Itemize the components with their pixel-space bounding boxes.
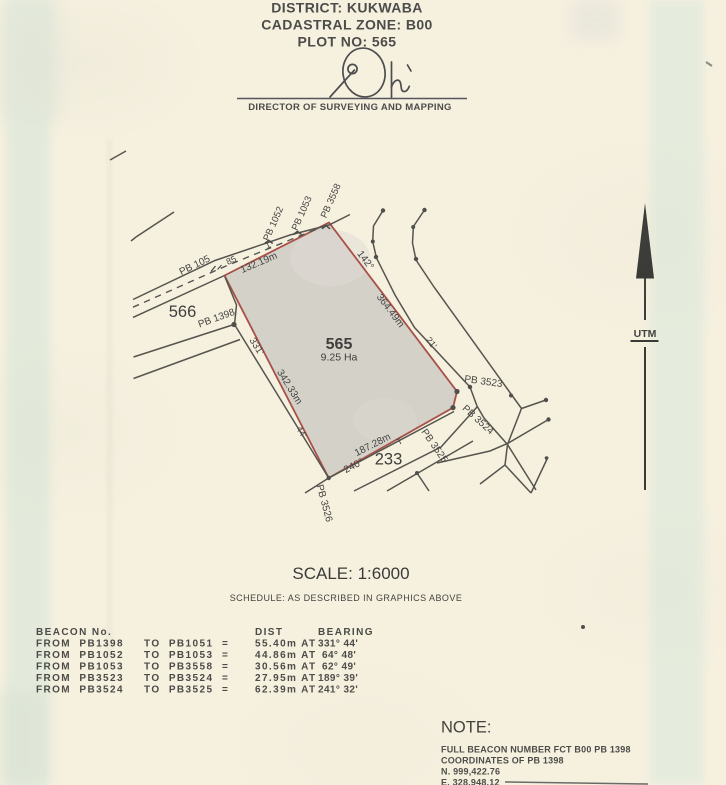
svg-text:TO PB3525: TO PB3525 xyxy=(144,685,213,696)
svg-text:E. 328,948.12: E. 328,948.12 xyxy=(441,777,500,785)
svg-text:SCHEDULE: AS DESCRIBED IN GRAP: SCHEDULE: AS DESCRIBED IN GRAPHICS ABOVE xyxy=(230,593,463,603)
svg-text:CADASTRAL ZONE: B00: CADASTRAL ZONE: B00 xyxy=(261,17,432,33)
svg-text:44.86m AT: 44.86m AT xyxy=(255,650,317,661)
svg-text:DIST: DIST xyxy=(255,627,283,638)
svg-text:=: = xyxy=(222,639,229,650)
svg-text:SCALE: 1:6000: SCALE: 1:6000 xyxy=(292,564,409,583)
svg-text:PB 3526: PB 3526 xyxy=(314,483,335,523)
svg-text:62.39m AT: 62.39m AT xyxy=(255,685,317,696)
svg-text:PB 3558: PB 3558 xyxy=(319,182,344,220)
svg-text:233: 233 xyxy=(375,451,403,469)
svg-text:9.25 Ha: 9.25 Ha xyxy=(321,352,358,364)
svg-text:331° 44': 331° 44' xyxy=(318,639,358,650)
svg-text:TO PB3524: TO PB3524 xyxy=(144,673,213,684)
svg-text:566: 566 xyxy=(169,303,197,321)
svg-text:PB 3525: PB 3525 xyxy=(419,427,450,465)
svg-text:DISTRICT: KUKWABA: DISTRICT: KUKWABA xyxy=(271,0,422,16)
svg-text:55.40m AT: 55.40m AT xyxy=(255,639,317,650)
svg-text:UTM: UTM xyxy=(634,328,657,340)
svg-text:27.95m AT: 27.95m AT xyxy=(255,673,317,684)
svg-text:PB 1053: PB 1053 xyxy=(290,195,315,233)
svg-text:TO PB1051: TO PB1051 xyxy=(144,639,213,650)
svg-text:64° 48': 64° 48' xyxy=(322,650,356,661)
svg-text:FULL BEACON NUMBER FCT B00 PB: FULL BEACON NUMBER FCT B00 PB 1398 xyxy=(441,745,631,755)
svg-text:21': 21' xyxy=(424,335,439,351)
svg-text:PB 1398: PB 1398 xyxy=(197,307,237,331)
svg-text:FROM PB1398: FROM PB1398 xyxy=(36,639,124,650)
svg-text:62° 49': 62° 49' xyxy=(322,662,356,673)
svg-text:PLOT NO: 565: PLOT NO: 565 xyxy=(298,34,397,50)
svg-text:COORDINATES OF PB 1398: COORDINATES OF PB 1398 xyxy=(441,756,564,766)
svg-text:TO PB3558: TO PB3558 xyxy=(144,662,213,673)
svg-text:N. 999,422.76: N. 999,422.76 xyxy=(441,767,500,777)
svg-text:=: = xyxy=(222,662,229,673)
svg-text:FROM PB1052: FROM PB1052 xyxy=(36,650,124,661)
svg-text:30.56m AT: 30.56m AT xyxy=(255,662,317,673)
svg-text:DIRECTOR OF SURVEYING AND MAPP: DIRECTOR OF SURVEYING AND MAPPING xyxy=(248,102,451,113)
svg-text:565: 565 xyxy=(326,336,353,353)
svg-text:=: = xyxy=(222,685,229,696)
svg-text:FROM PB3524: FROM PB3524 xyxy=(36,685,124,696)
svg-text:85: 85 xyxy=(225,254,238,267)
svg-text:FROM PB1053: FROM PB1053 xyxy=(36,662,124,673)
svg-text:FROM PB3523: FROM PB3523 xyxy=(36,673,124,684)
svg-text:TO PB1053: TO PB1053 xyxy=(144,650,213,661)
svg-text:=: = xyxy=(222,650,229,661)
svg-text:PB 105: PB 105 xyxy=(178,253,213,277)
svg-text:241° 32': 241° 32' xyxy=(318,685,358,696)
svg-text:BEARING: BEARING xyxy=(318,627,374,638)
svg-text:=: = xyxy=(222,673,229,684)
svg-text:189° 39': 189° 39' xyxy=(318,673,358,684)
svg-text:BEACON No.: BEACON No. xyxy=(36,627,112,638)
svg-text:NOTE:: NOTE: xyxy=(441,719,491,737)
